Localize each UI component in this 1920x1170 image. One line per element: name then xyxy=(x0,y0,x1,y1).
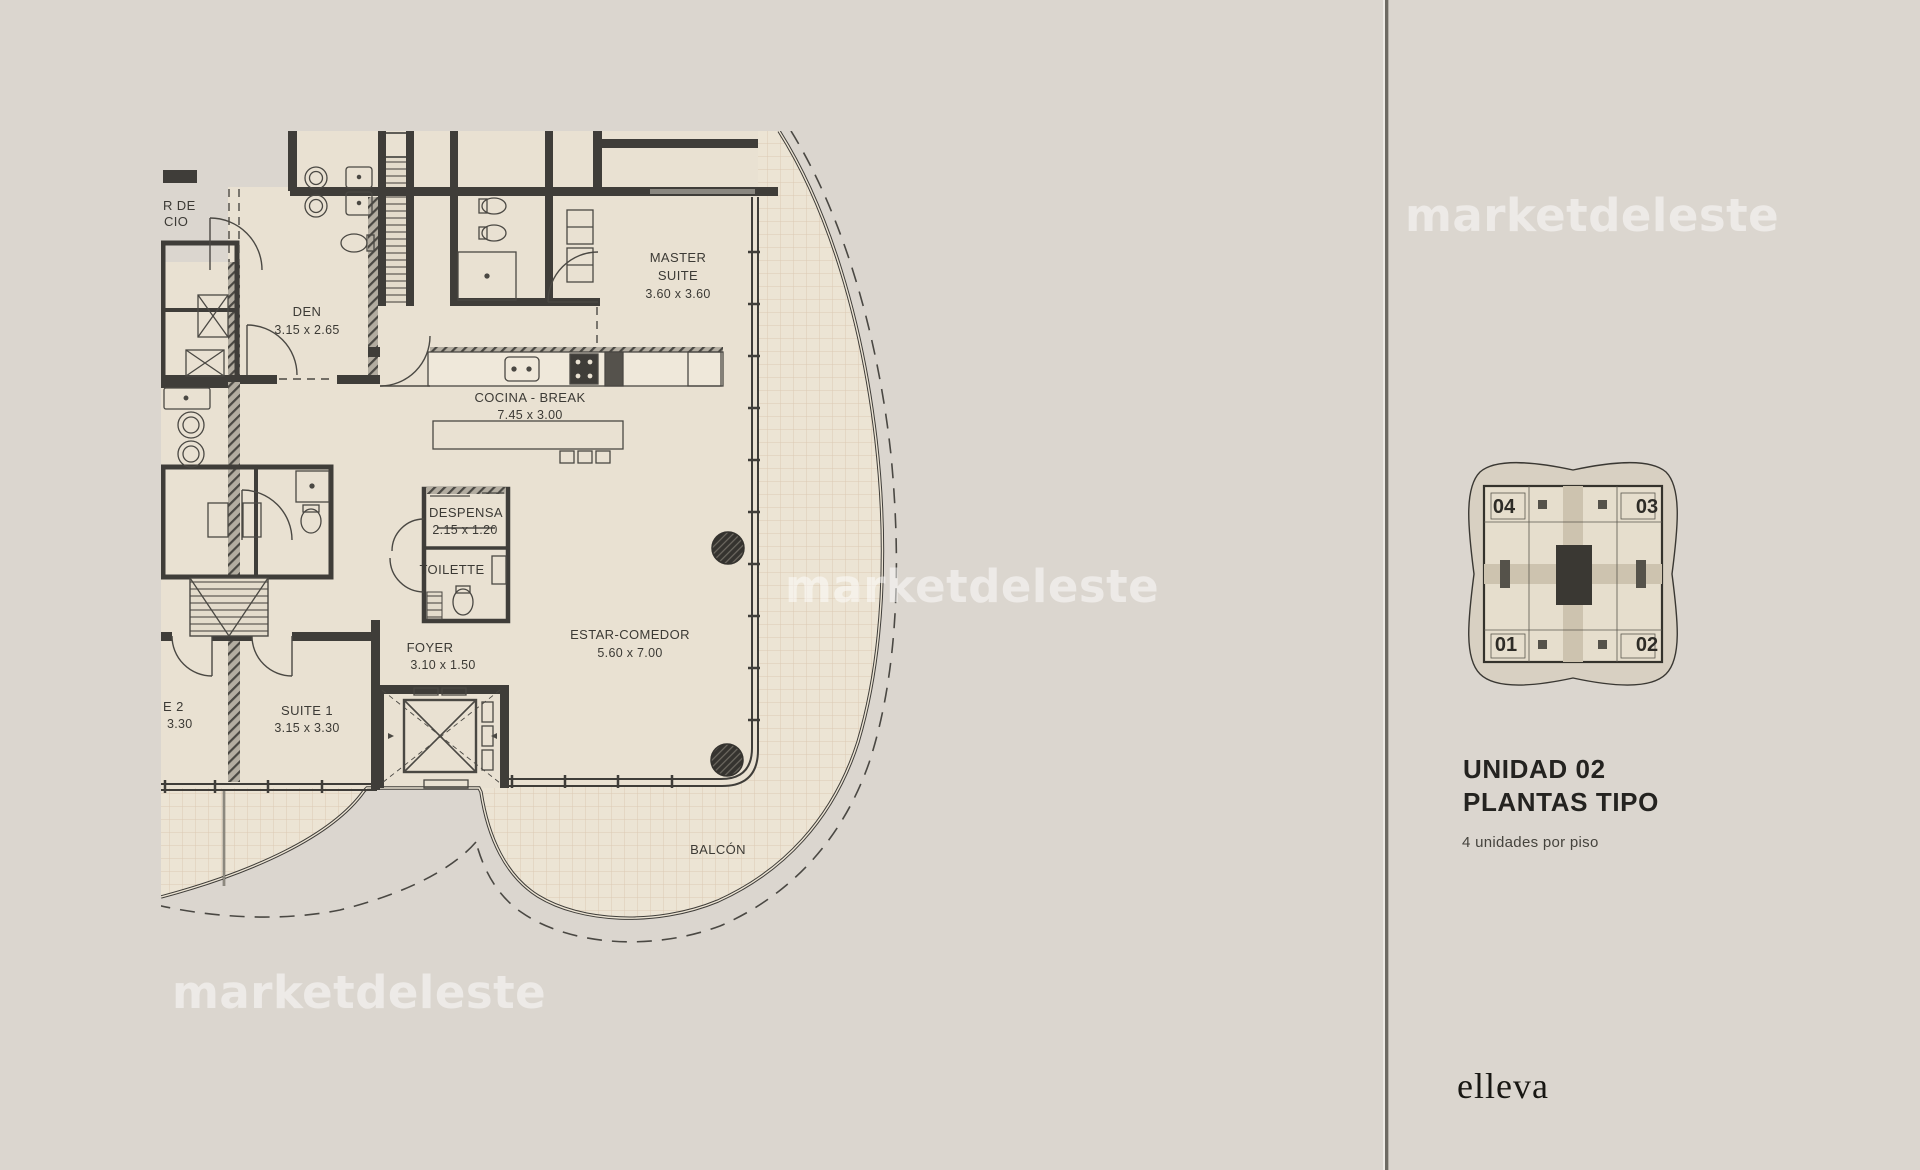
label-despensa-dims: 2.15 x 1.20 xyxy=(432,523,497,537)
label-balcon: BALCÓN xyxy=(690,842,746,857)
label-den-dims: 3.15 x 2.65 xyxy=(274,323,339,337)
keyplan-unit-02: 02 xyxy=(1636,634,1658,656)
label-despensa: DESPENSA xyxy=(429,505,503,520)
label-suite1: SUITE 1 xyxy=(281,703,333,718)
label-foyer: FOYER xyxy=(407,640,454,655)
unit-title-line1: UNIDAD 02 xyxy=(1463,754,1606,784)
label-suite1-dims: 3.15 x 3.30 xyxy=(274,721,339,735)
label-cocina: COCINA - BREAK xyxy=(474,390,585,405)
floor-plan: R DE CIO DEN 3.15 x 2.65 MASTER SUITE 3.… xyxy=(148,131,896,942)
label-master-1: MASTER xyxy=(650,250,707,265)
keyplan-unit-01: 01 xyxy=(1495,634,1517,656)
unit-subtitle: 4 unidades por piso xyxy=(1462,834,1599,851)
label-suite2-dims: 3.30 xyxy=(167,717,193,731)
watermark-center: marketdeleste xyxy=(785,560,1159,613)
label-palier-line2: CIO xyxy=(164,214,188,229)
label-master-dims: 3.60 x 3.60 xyxy=(645,287,710,301)
column-icon xyxy=(711,744,743,776)
label-master-2: SUITE xyxy=(658,268,698,283)
poster-page: R DE CIO DEN 3.15 x 2.65 MASTER SUITE 3.… xyxy=(0,0,1920,1170)
label-estar: ESTAR-COMEDOR xyxy=(570,627,690,642)
watermark-top-right: marketdeleste xyxy=(1405,189,1779,242)
label-suite2: E 2 xyxy=(163,699,184,714)
column-icon xyxy=(712,532,744,564)
label-estar-dims: 5.60 x 7.00 xyxy=(597,646,662,660)
unit-title-line2: PLANTAS TIPO xyxy=(1463,787,1659,817)
label-cocina-dims: 7.45 x 3.00 xyxy=(497,408,562,422)
brand-logo: elleva xyxy=(1457,1066,1549,1106)
keyplan-unit-03: 03 xyxy=(1636,496,1658,518)
label-palier-line1: R DE xyxy=(163,198,196,213)
floor-plan-poster: R DE CIO DEN 3.15 x 2.65 MASTER SUITE 3.… xyxy=(0,0,1920,1170)
panel-divider xyxy=(1383,0,1389,1170)
label-foyer-dims: 3.10 x 1.50 xyxy=(410,658,475,672)
watermark-bottom-left: marketdeleste xyxy=(172,966,546,1019)
keyplan-thumbnail: 04 03 01 02 xyxy=(1469,463,1678,685)
keyplan-unit-04: 04 xyxy=(1493,496,1516,518)
label-den: DEN xyxy=(293,304,322,319)
label-toilette: TOILETTE xyxy=(419,562,484,577)
